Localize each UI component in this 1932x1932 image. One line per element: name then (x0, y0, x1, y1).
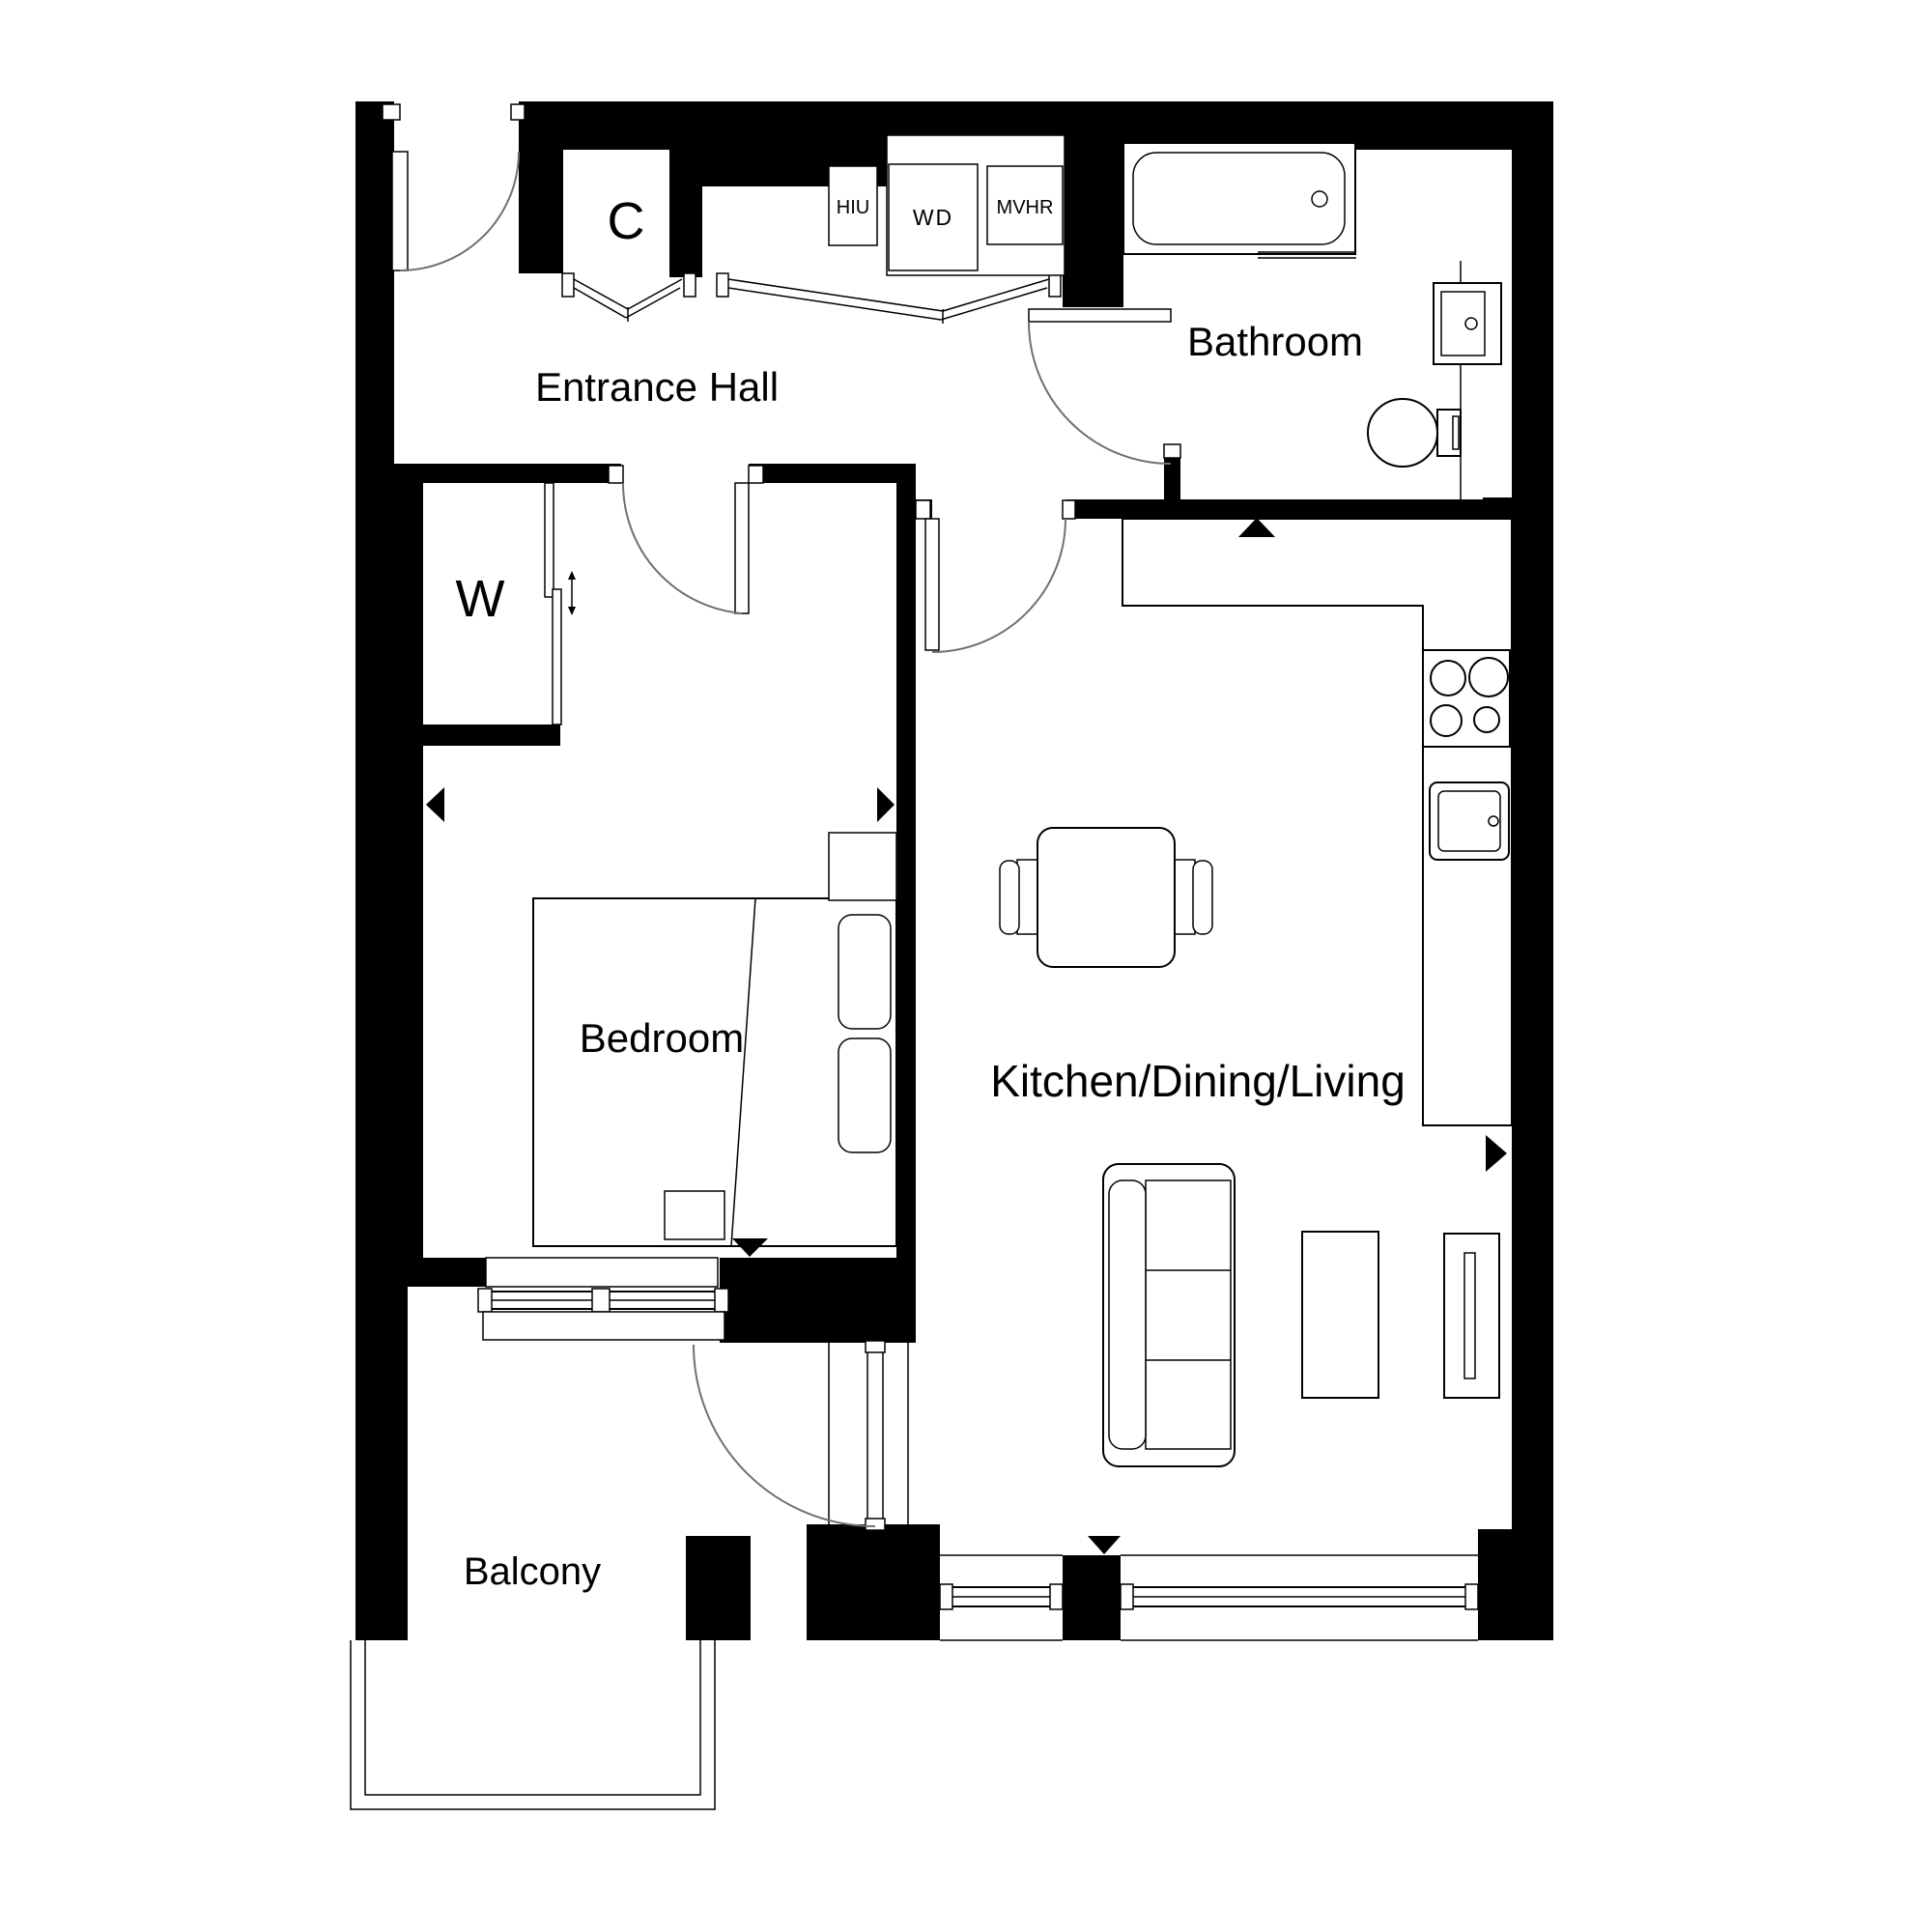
wall-bedroom-living (896, 464, 916, 1258)
coffee-table (1302, 1232, 1378, 1398)
wall-c-closet-right (669, 101, 702, 277)
labels: Entrance Hall Bathroom Bedroom Kitchen/D… (456, 192, 1406, 1593)
marker-bedroom-south (732, 1238, 768, 1257)
balcony-railing (351, 1640, 715, 1809)
bathtub (1123, 143, 1356, 258)
wall-balcony-se-post (686, 1536, 751, 1640)
living-window-b-jamb-left (1121, 1584, 1133, 1609)
cupboard-bifold-doors (562, 273, 696, 322)
bathroom-door-leaf (1029, 309, 1171, 322)
wardrobe-slider-panel-1 (545, 483, 554, 597)
wall-left-bedroom (355, 464, 423, 1258)
marker-bedroom-west (426, 787, 444, 822)
wall-left-balcony (355, 1258, 408, 1640)
balcony-door-leaf (867, 1345, 883, 1526)
walls (355, 101, 1553, 1640)
balcony-door-jamb-top (866, 1341, 885, 1352)
bedroom-window (478, 1258, 728, 1340)
wall-bathroom-south (1065, 499, 1512, 519)
sofa-cushions (1146, 1180, 1231, 1449)
utility-bifold-doors (717, 273, 1061, 324)
entrance-door-swing-arc (400, 152, 519, 270)
wall-top-b (889, 101, 1065, 140)
hob (1423, 650, 1510, 747)
dining-table (1037, 828, 1175, 967)
bed-pillow-2 (838, 1038, 891, 1152)
bedroom-door-jamb-right (749, 466, 763, 483)
cupboard-label: C (608, 192, 645, 250)
hiu-label: HIU (837, 197, 869, 218)
living-window-a (940, 1555, 1063, 1640)
entrance-door-leaf (392, 152, 408, 270)
wall-left-upper (355, 101, 394, 464)
marker-living-south (1088, 1536, 1121, 1554)
bathroom-door-jamb (1164, 444, 1180, 458)
bathroom-label: Bathroom (1187, 319, 1363, 364)
tv-screen (1464, 1253, 1475, 1378)
wall-wardrobe-south (394, 724, 560, 746)
toilet (1368, 399, 1461, 467)
balcony-railing-outer (351, 1640, 715, 1809)
bedroom-window-jamb-left (478, 1289, 492, 1312)
wall-top-a (519, 101, 669, 150)
wall-living-south-right-pier (1478, 1529, 1553, 1640)
balcony-door-swing-arc (694, 1345, 875, 1526)
hob-ring-1 (1431, 661, 1465, 696)
bed-pillow-1 (838, 915, 891, 1029)
door-frame-notches (383, 104, 525, 120)
bedroom-door-swing-arc (623, 483, 742, 613)
wall-bedroom-south-left (394, 1258, 486, 1287)
marker-bedroom-east (877, 787, 895, 822)
mvhr-label: MVHR (997, 197, 1054, 218)
floor-plan-canvas: Entrance Hall Bathroom Bedroom Kitchen/D… (0, 0, 1932, 1932)
cupboard-bifold-panels (574, 279, 682, 322)
bedside-table (829, 833, 896, 900)
dining-chair-left-back (1000, 861, 1019, 934)
bedroom-window-inner-sill (486, 1258, 718, 1287)
bedroom-window-jamb-right (715, 1289, 728, 1312)
utility-bifold-panels (728, 279, 1049, 324)
balcony-door (694, 1341, 908, 1530)
living-window-b (1121, 1555, 1478, 1640)
hob-ring-2 (1469, 658, 1508, 696)
wardrobe-sliding-door (545, 483, 576, 724)
kitchen-fixtures (1122, 519, 1512, 1125)
wall-bedroom-south-chunk (720, 1258, 916, 1343)
washbasin-inner (1441, 292, 1485, 355)
utility-bifold-jamb-left (717, 273, 728, 297)
floor-plan: Entrance Hall Bathroom Bedroom Kitchen/D… (0, 0, 1932, 1932)
kitchen-door-swing-arc (932, 519, 1065, 652)
wardrobe-slider-arrowhead-down (568, 607, 576, 615)
furniture (533, 828, 1499, 1466)
bedroom-door (609, 466, 763, 613)
wardrobe-slider-panel-2 (553, 589, 561, 724)
dining-set (1000, 828, 1212, 967)
washbasin (1434, 283, 1501, 364)
bedroom-door-leaf (735, 483, 749, 613)
washbasin-tap (1465, 318, 1477, 329)
kitchen-sink (1430, 782, 1509, 860)
bed-foot-stool (665, 1191, 724, 1239)
kitchen-door (916, 500, 1075, 652)
wall-bedroom-north-right (749, 464, 916, 483)
wall-living-south-mid-pier (1063, 1555, 1121, 1640)
toilet-cistern-detail (1453, 416, 1459, 449)
hob-ring-4 (1474, 707, 1499, 732)
wall-c-closet-left (519, 145, 563, 273)
bed (533, 898, 896, 1246)
entrance-door-notch-right (511, 104, 525, 120)
bathroom-door (1029, 309, 1180, 464)
cupboard-bifold-jamb-left (562, 273, 574, 297)
entrance-hall-label: Entrance Hall (535, 364, 779, 410)
kitchen-sink-tap (1489, 816, 1498, 826)
hob-ring-3 (1431, 705, 1462, 736)
balcony-door-jamb-bottom (866, 1519, 885, 1530)
toilet-bowl (1368, 399, 1437, 467)
wall-top-chunk (1063, 101, 1123, 307)
cupboard-bifold-jamb-right (684, 273, 696, 297)
bedroom-window-outer-sill (483, 1312, 724, 1340)
dining-chair-right-back (1193, 861, 1212, 934)
living-window-a-jamb-left (940, 1584, 952, 1609)
kitchen-door-jamb-left (916, 500, 930, 519)
tv-unit (1444, 1234, 1499, 1398)
wall-balcony-south-chunk (807, 1524, 940, 1640)
living-window-a-jamb-right (1050, 1584, 1063, 1609)
living-window-b-jamb-right (1465, 1584, 1478, 1609)
utility-bifold-jamb-right (1049, 273, 1061, 297)
kitchen-door-leaf (925, 519, 939, 650)
entrance-door (392, 152, 519, 270)
bedroom-label: Bedroom (580, 1015, 744, 1061)
marker-living-east (1486, 1135, 1507, 1172)
bedroom-window-mullion (592, 1289, 610, 1312)
sofa (1103, 1164, 1235, 1466)
kitchen-dining-living-label: Kitchen/Dining/Living (990, 1056, 1406, 1106)
balcony-label: Balcony (464, 1550, 601, 1593)
wardrobe-label: W (456, 570, 505, 628)
sofa-backrest (1109, 1180, 1146, 1449)
wd-label: WD (913, 205, 953, 230)
bathroom-door-swing-arc (1029, 322, 1171, 464)
wall-right (1512, 101, 1553, 1640)
entrance-door-notch-left (383, 104, 400, 120)
kitchen-door-jamb-right (1063, 500, 1075, 519)
wardrobe-slider-arrowhead-up (568, 571, 576, 580)
bedroom-door-jamb-left (609, 466, 623, 483)
balcony-railing-inner (365, 1640, 700, 1795)
wall-bedroom-north-left (355, 464, 621, 483)
bathtub-drain (1312, 191, 1327, 207)
